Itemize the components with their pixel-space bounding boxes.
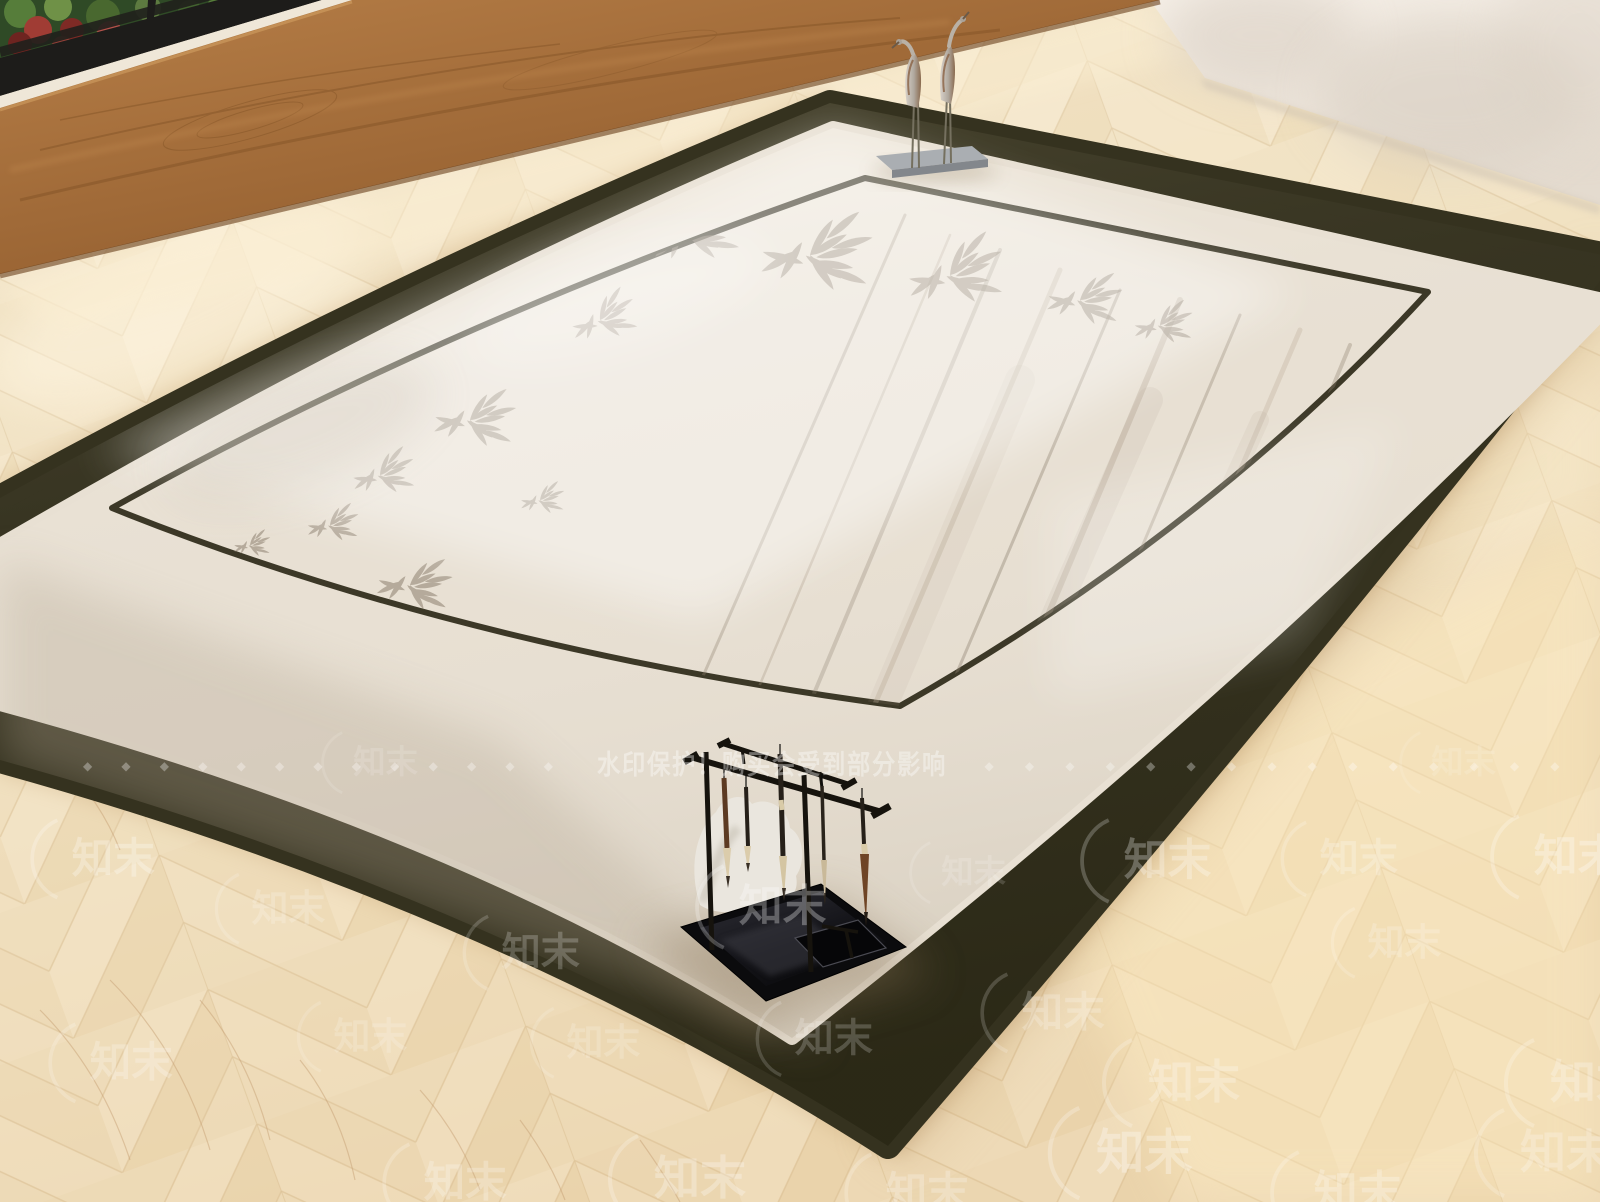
scene-canvas: 知末 [0, 0, 1600, 1202]
watermark-notice: 水印保护！购买会受到部分影响 [597, 749, 947, 781]
product-photo-rug-scene: 知末 [0, 0, 1600, 1202]
